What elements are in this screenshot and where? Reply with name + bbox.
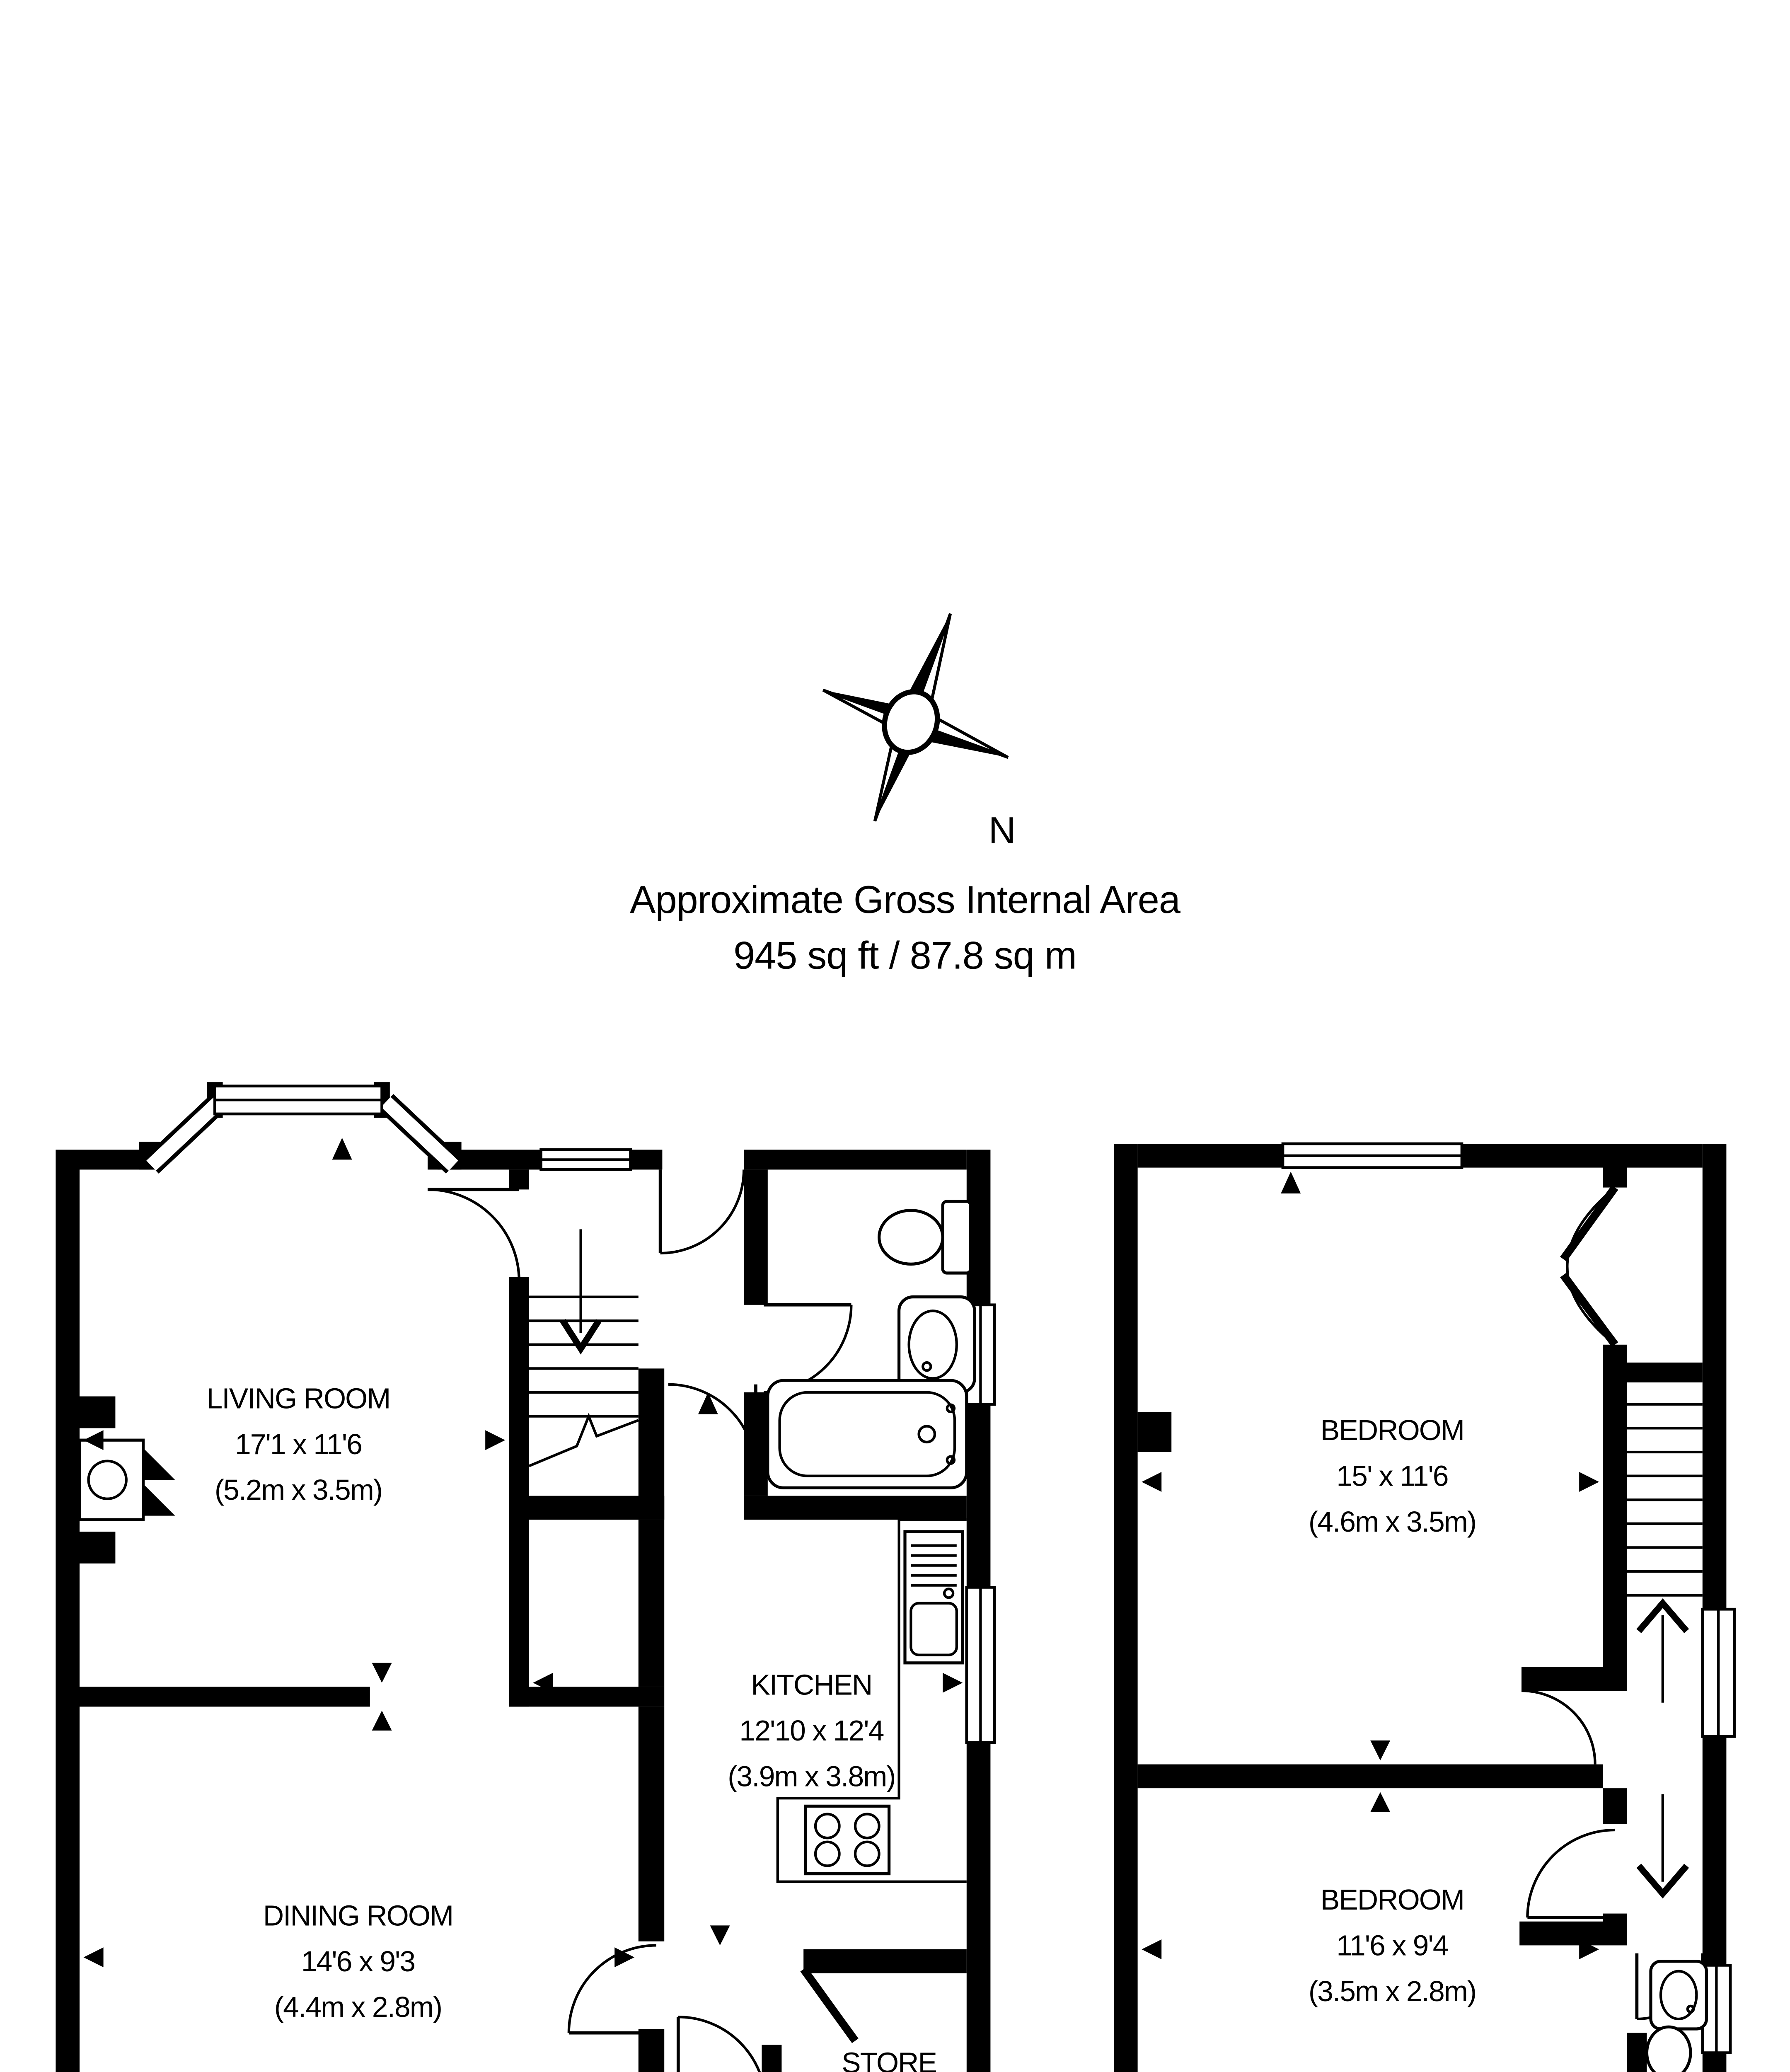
gf-kitchen-door: [668, 1385, 756, 1472]
ff-right-wall: [1703, 1144, 1727, 1609]
bedroom2-dims-imperial: 11'6 x 9'4: [1336, 1929, 1448, 1961]
dining-room-dims-imperial: 14'6 x 9'3: [301, 1945, 415, 1978]
compass-north-label: N: [989, 809, 1016, 852]
ff-staircase: [1627, 1404, 1702, 1894]
gf-toilet-icon: [879, 1201, 971, 1273]
gf-bath-icon: [768, 1380, 967, 1488]
kitchen-name: KITCHEN: [751, 1669, 872, 1701]
ff-bedroom-divider-wall: [1138, 1765, 1603, 1789]
ff-stairs-wall: [1603, 1345, 1627, 1667]
gf-store-wall: [803, 1949, 967, 1973]
ff-bedroom2-label: BEDROOM 11'6 x 9'4 (3.5m x 2.8m): [1309, 1883, 1476, 2007]
gf-washbasin-icon: [899, 1297, 975, 1392]
ff-washbasin-icon: [1651, 1961, 1706, 2029]
gf-bathroom-wall: [744, 1169, 768, 1305]
gf-kitchen-label: KITCHEN 12'10 x 12'4 (3.9m x 3.8m): [728, 1669, 895, 1793]
ff-stairs-down-arrow: [1639, 1794, 1686, 1894]
gf-stairs-break-line: [529, 1416, 639, 1466]
living-room-name: LIVING ROOM: [207, 1382, 390, 1414]
dining-room-dims-metric: (4.4m x 2.8m): [274, 1991, 442, 2023]
floorplan-drawing: N Approximate Gross Internal Area 945 sq…: [0, 0, 1790, 2072]
first-floor-plan: BEDROOM 15' x 11'6 (4.6m x 3.5m) BEDROOM…: [1114, 1144, 1734, 2072]
gf-living-room-door: [428, 1189, 519, 1281]
gf-store-door: [803, 1969, 855, 2041]
living-room-dims-metric: (5.2m x 3.5m): [215, 1474, 382, 1506]
gf-hob-icon: [805, 1806, 889, 1874]
gf-dining-hall-wall: [639, 1706, 664, 1941]
ff-bedroom1-door: [1521, 1691, 1595, 1765]
gf-kitchen-window: [967, 1587, 994, 1742]
ground-floor-plan: LIVING ROOM 17'1 x 11'6 (5.2m x 3.5m) DI…: [56, 1082, 994, 2072]
store-label: STORE: [842, 2047, 936, 2072]
dining-room-name: DINING ROOM: [263, 1899, 453, 1932]
bedroom1-dims-metric: (4.6m x 3.5m): [1309, 1506, 1476, 1538]
gf-bathroom-bottom-wall: [744, 1496, 967, 1520]
gf-hall-living-wall: [509, 1277, 529, 1707]
gf-dining-room-label: DINING ROOM 14'6 x 9'3 (4.4m x 2.8m): [263, 1899, 453, 2023]
gf-bay-window: [139, 1082, 462, 1169]
compass-rose-icon: N: [787, 582, 1047, 857]
gf-entrance-door: [678, 2017, 766, 2072]
gf-fireplace-icon: [75, 1397, 175, 1564]
gf-living-dining-wall: [75, 1687, 370, 1706]
bedroom2-name: BEDROOM: [1321, 1883, 1464, 1916]
bedroom1-name: BEDROOM: [1321, 1414, 1464, 1446]
bedroom2-dims-metric: (3.5m x 2.8m): [1309, 1975, 1476, 2007]
bedroom1-dims-imperial: 15' x 11'6: [1336, 1460, 1448, 1492]
gf-front-door: [660, 1169, 744, 1253]
floorplan-page: N Approximate Gross Internal Area 945 sq…: [0, 0, 1790, 2072]
gf-dining-room-door: [569, 1945, 656, 2033]
ff-toilet-icon: [1645, 2027, 1695, 2072]
kitchen-dims-metric: (3.9m x 3.8m): [728, 1760, 895, 1792]
gf-left-wall: [56, 1150, 80, 2072]
gf-living-room-label: LIVING ROOM 17'1 x 11'6 (5.2m x 3.5m): [207, 1382, 390, 1506]
living-room-dims-imperial: 17'1 x 11'6: [235, 1428, 362, 1460]
ff-top-wall: [1138, 1144, 1283, 1168]
gf-top-wall: [744, 1150, 967, 1169]
ff-left-wall: [1114, 1144, 1138, 2072]
ff-stairs-window: [1703, 1609, 1734, 1736]
ff-bedroom2-door: [1527, 1830, 1615, 1917]
ff-wc-wall: [1627, 2033, 1647, 2072]
gf-staircase: [529, 1229, 639, 1466]
gf-hall-window: [541, 1150, 631, 1169]
ff-bifold-door: [1563, 1188, 1615, 1345]
kitchen-dims-imperial: 12'10 x 12'4: [739, 1714, 883, 1747]
ff-bedroom1-label: BEDROOM 15' x 11'6 (4.6m x 3.5m): [1309, 1414, 1476, 1538]
page-title: Approximate Gross Internal Area: [630, 878, 1181, 921]
ff-stairs-up-arrow: [1639, 1603, 1686, 1703]
ff-chimney-breast: [1138, 1412, 1172, 1452]
page-title-area: 945 sq ft / 87.8 sq m: [733, 934, 1076, 977]
ff-bedroom1-window: [1283, 1144, 1462, 1168]
gf-kitchen-sink-icon: [905, 1532, 963, 1663]
